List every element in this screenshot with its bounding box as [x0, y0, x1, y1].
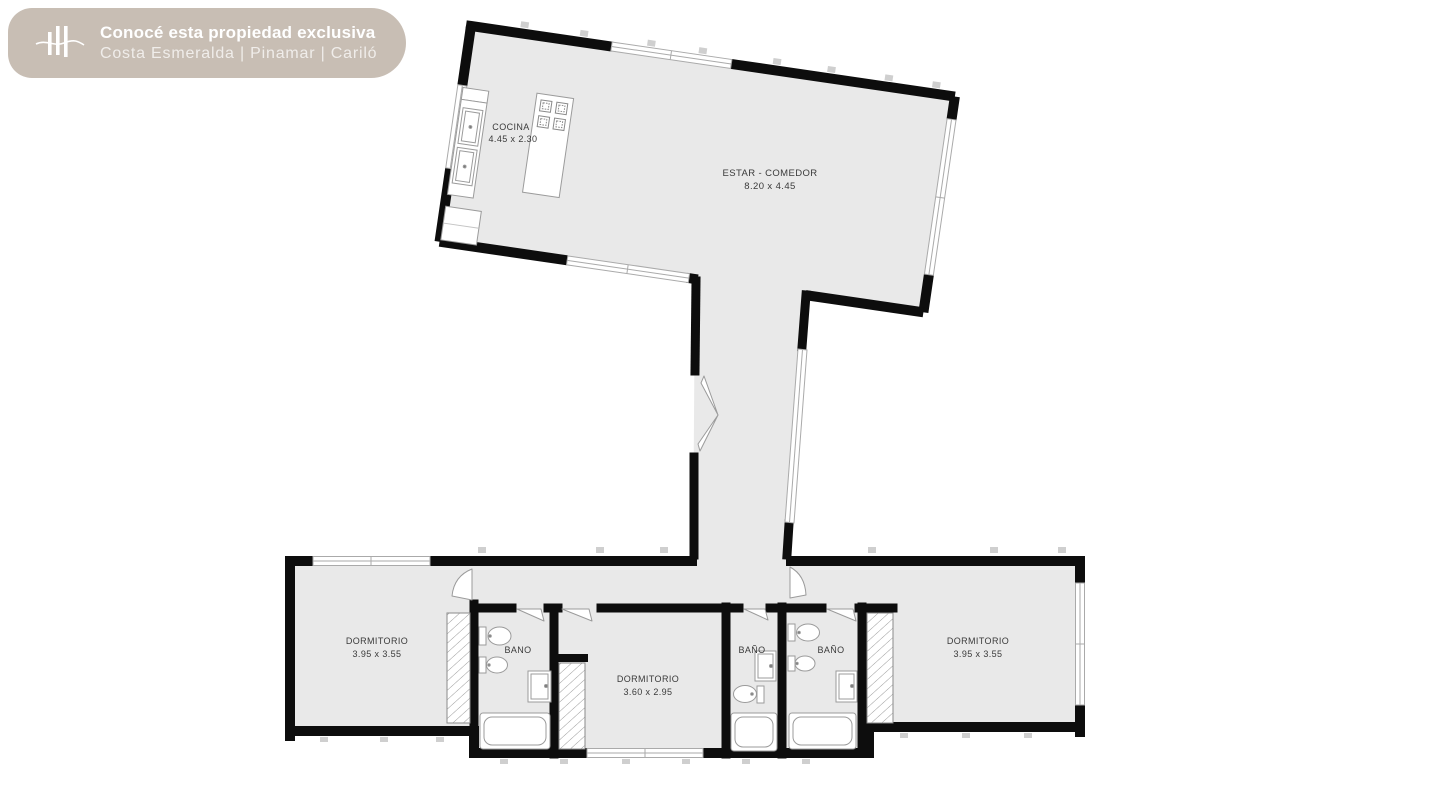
label-cocina: COCINA: [492, 122, 529, 132]
dims-dormitorio-izq: 3.95 x 3.55: [353, 649, 402, 659]
banner-title: Conocé esta propiedad exclusiva: [100, 22, 377, 43]
floor-plan-drawing: COCINA 4.45 x 2.30 ESTAR - COMEDOR 8.20 …: [0, 0, 1440, 810]
label-estar-comedor: ESTAR - COMEDOR: [722, 168, 817, 179]
label-dormitorio-der: DORMITORIO: [947, 636, 1009, 646]
wardrobe-right-bedroom: [867, 613, 893, 723]
promo-banner[interactable]: Conocé esta propiedad exclusiva Costa Es…: [8, 8, 406, 78]
dims-dormitorio-centro: 3.60 x 2.95: [624, 687, 673, 697]
toilet-tank: [788, 624, 795, 641]
label-bano-1: BAÑO: [738, 645, 765, 655]
toilet-tank: [479, 627, 486, 645]
label-bano-2: BAÑO: [817, 645, 844, 655]
three-bars-wave-icon: [34, 19, 86, 67]
bidet-tank: [479, 657, 486, 673]
bathtub: [480, 713, 550, 749]
label-dormitorio-centro: DORMITORIO: [617, 674, 679, 684]
bidet-tank: [788, 656, 795, 671]
bathtub: [789, 713, 856, 749]
floor-living-kitchen: [440, 26, 955, 312]
dims-dormitorio-der: 3.95 x 3.55: [954, 649, 1003, 659]
toilet-tank: [757, 686, 764, 703]
dims-estar-comedor: 8.20 x 4.45: [744, 181, 795, 192]
dims-cocina: 4.45 x 2.30: [489, 134, 538, 144]
wardrobe-center-bedroom: [559, 663, 585, 749]
banner-subtitle: Costa Esmeralda | Pinamar | Cariló: [100, 44, 377, 64]
wardrobe-left-bedroom: [447, 613, 470, 723]
label-dormitorio-izq: DORMITORIO: [346, 636, 408, 646]
label-bano-izq: BANO: [504, 645, 531, 655]
floor-plan-page: Conocé esta propiedad exclusiva Costa Es…: [0, 0, 1440, 810]
